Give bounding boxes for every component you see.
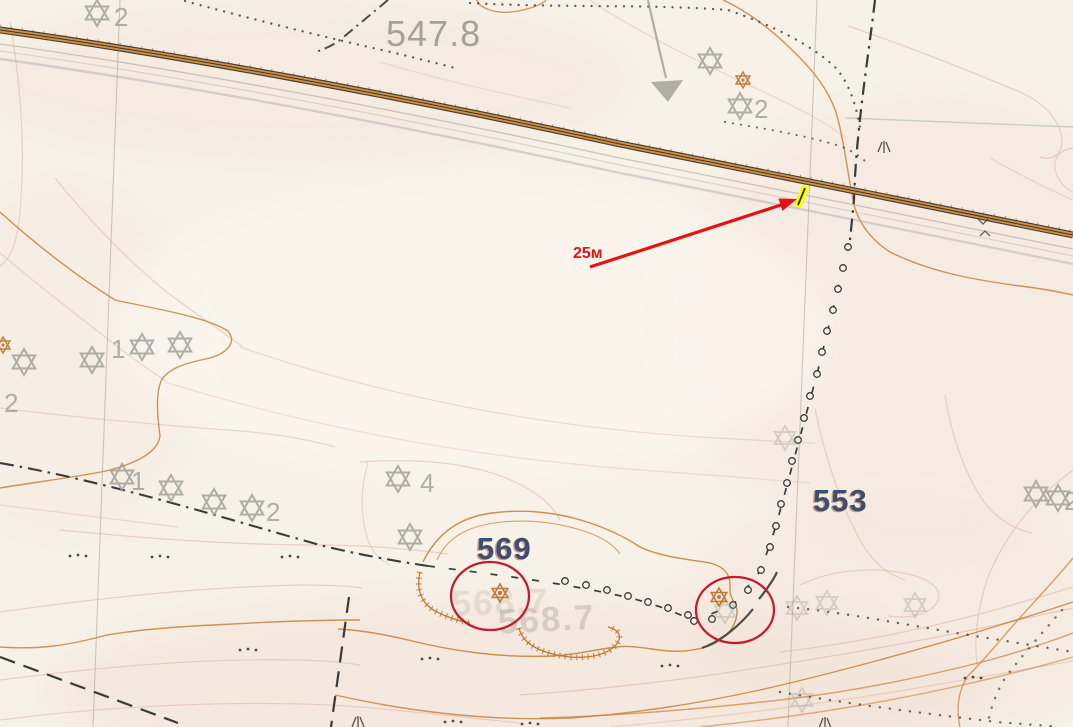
boundary-post-circle <box>758 567 765 574</box>
boundary-post-circle <box>784 480 791 487</box>
symbol-count-label: 2 <box>4 388 18 418</box>
boundary-post-circle <box>583 582 590 589</box>
boundary-post-circle <box>801 415 808 422</box>
boundary-post-circle <box>645 599 652 606</box>
boundary-post-circle <box>625 593 632 600</box>
svg-text:569: 569 <box>477 531 532 566</box>
boundary-post-circle <box>840 265 847 272</box>
boundary-post-circle <box>814 371 821 378</box>
symbol-count-label: 1 <box>111 334 125 364</box>
boundary-post-circle <box>835 286 842 293</box>
boundary-post-circle <box>745 587 752 594</box>
annotation-distance-label: 25м <box>573 245 603 262</box>
symbol-count-label: 4 <box>420 468 434 498</box>
boundary-post-circle <box>845 244 852 251</box>
boundary-post-circle <box>562 578 569 585</box>
spot-height-547-8: 547.8 <box>386 13 481 54</box>
boundary-post-circle <box>604 587 611 594</box>
symbol-count-label: 1 <box>131 466 145 496</box>
boundary-post-circle <box>665 605 672 612</box>
boundary-post-circle <box>789 458 796 465</box>
spot-height-553: 553 553 <box>812 483 868 519</box>
symbol-count-label: 2 <box>1064 486 1073 516</box>
boundary-post-circle <box>778 501 785 508</box>
boundary-post-circle <box>807 393 814 400</box>
symbol-count-label: 2 <box>754 94 768 124</box>
symbol-count-label: 2 <box>114 2 128 32</box>
boundary-post-circle <box>830 307 837 314</box>
boundary-post-circle <box>795 437 802 444</box>
topographic-map[interactable]: 568.7 568.7 <box>0 0 1073 727</box>
svg-text:568.7: 568.7 <box>497 598 597 642</box>
boundary-post-circle <box>824 328 831 335</box>
boundary-post-circle <box>767 544 774 551</box>
boundary-post-circle <box>819 349 826 356</box>
boundary-post-circle <box>773 523 780 530</box>
symbol-count-label: 2 <box>266 497 280 527</box>
svg-text:553: 553 <box>813 483 868 518</box>
boundary-post-circle <box>685 612 692 619</box>
